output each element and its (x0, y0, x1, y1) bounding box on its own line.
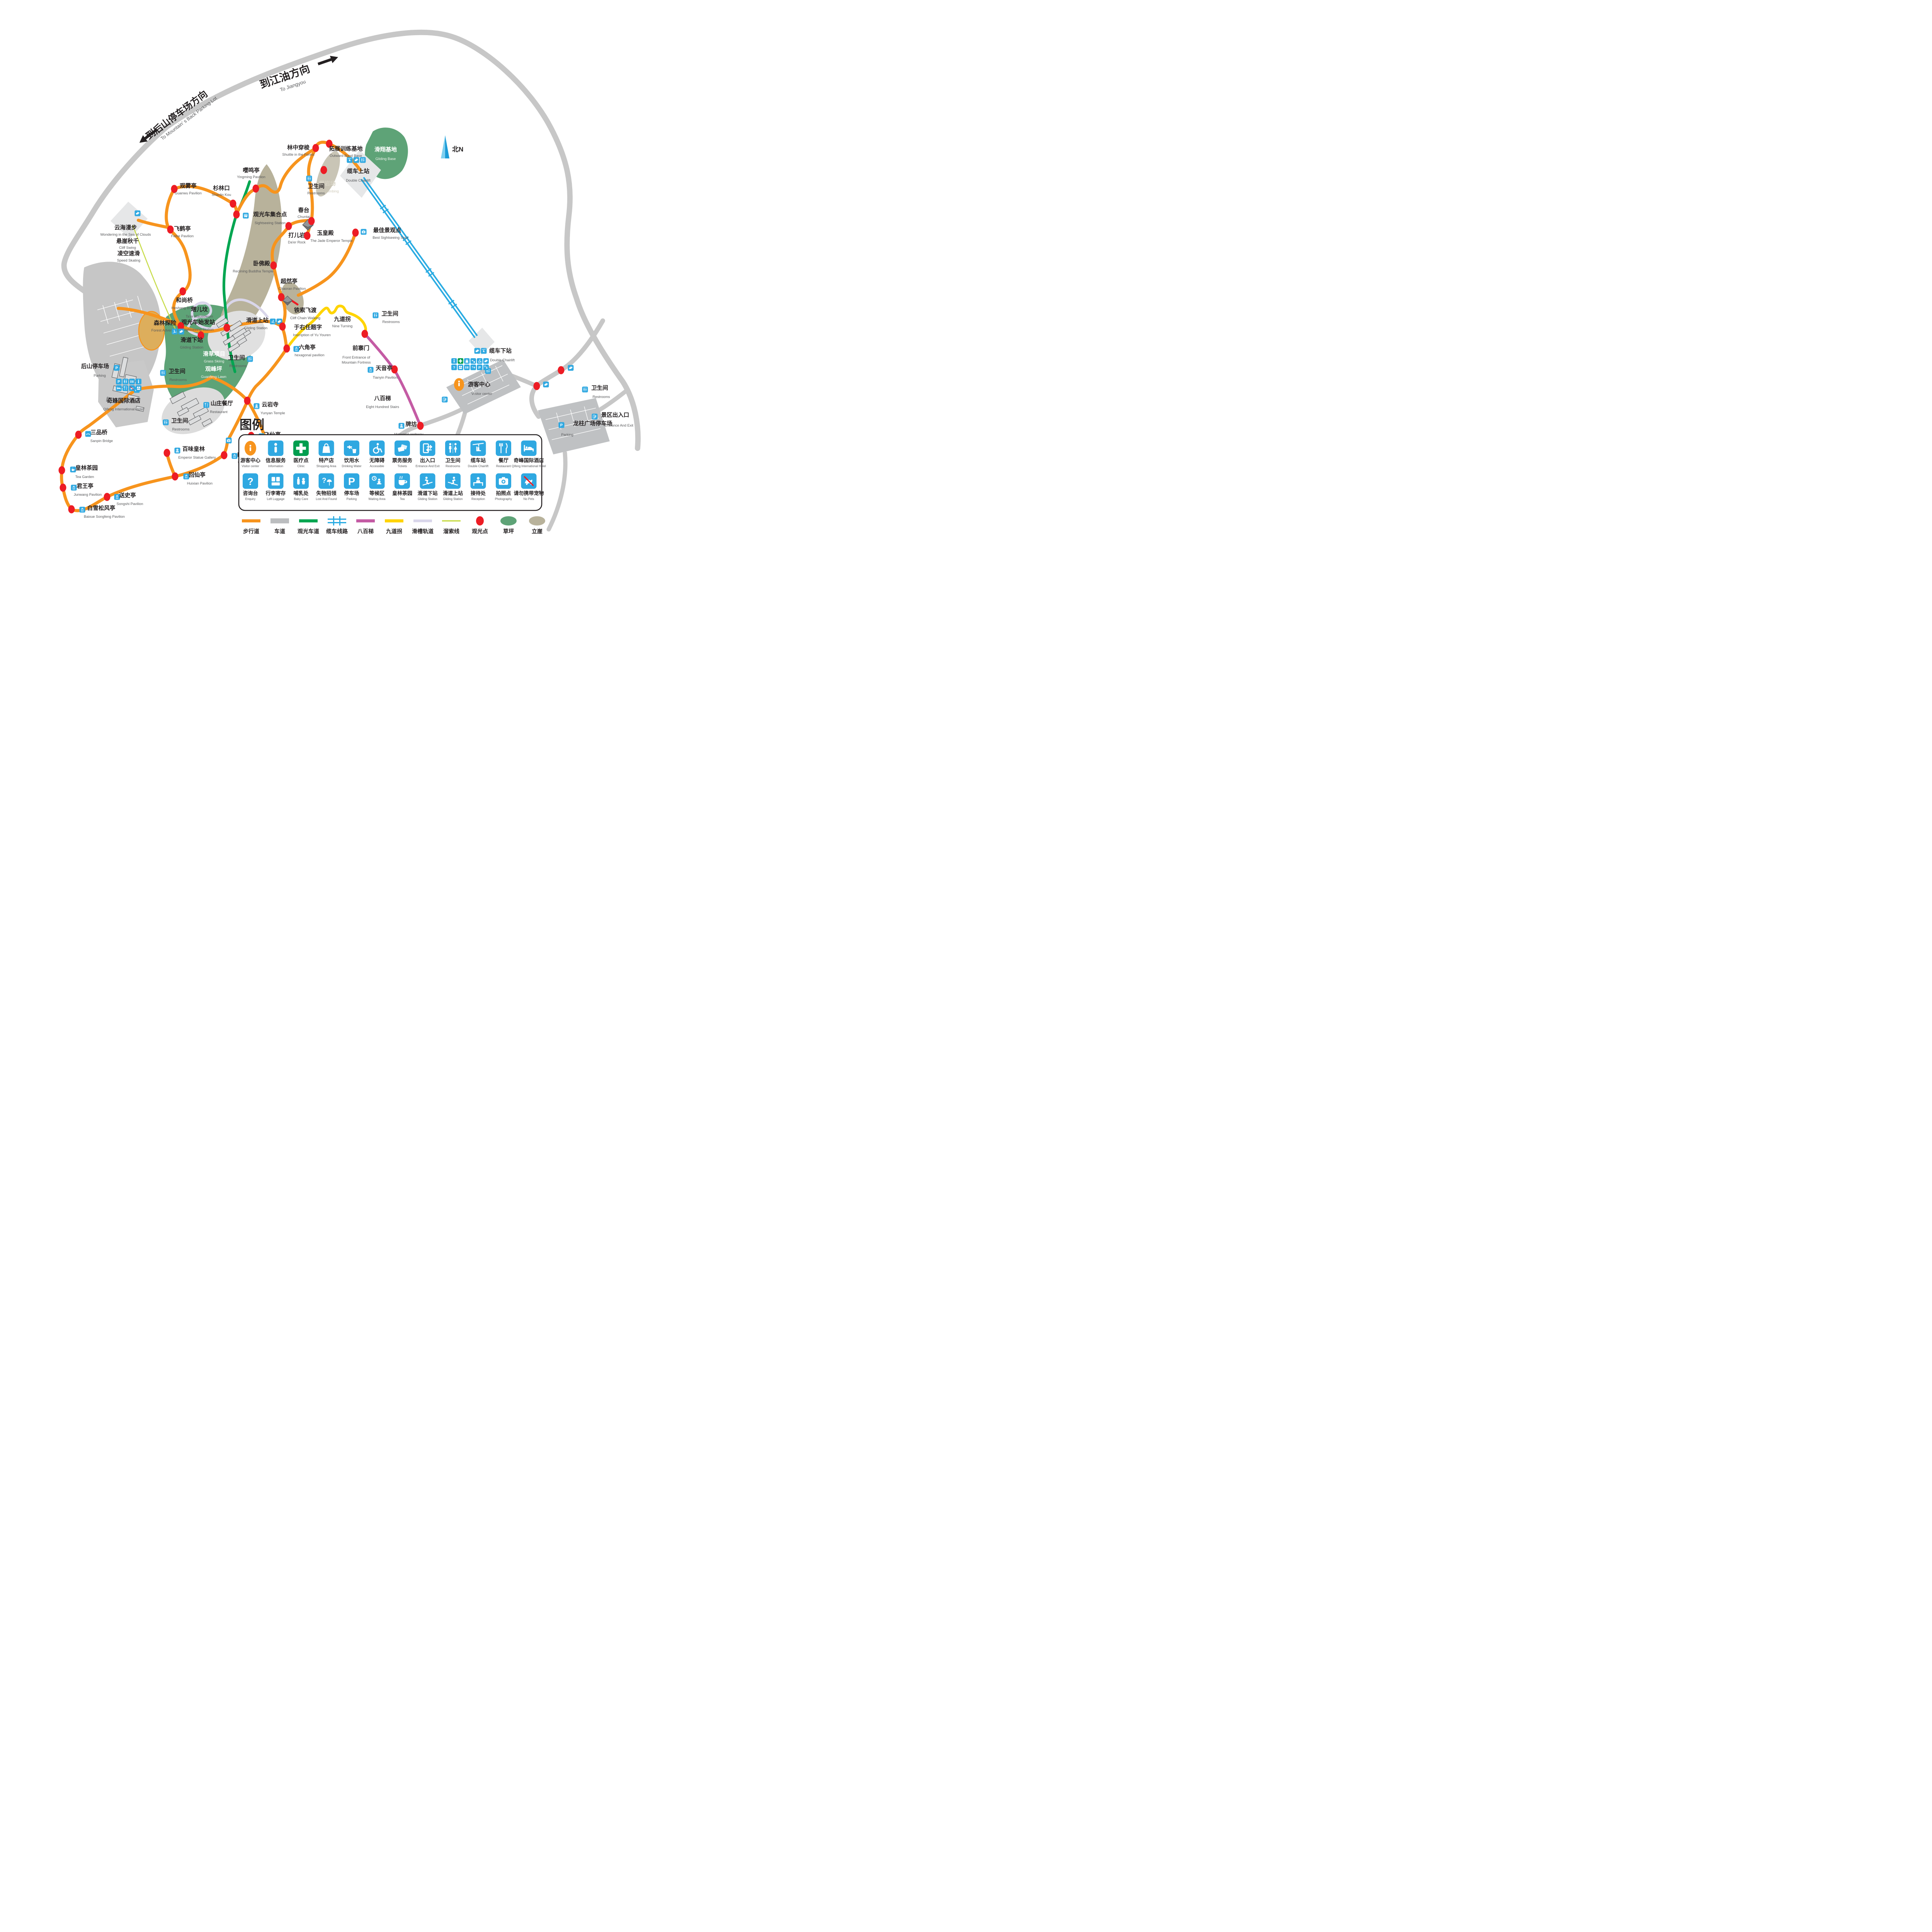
badge-bg (442, 397, 448, 403)
poi-label-en: Cliff Chain Walking (290, 316, 320, 320)
water-icon (471, 358, 476, 364)
restrooms-icon (163, 420, 169, 425)
poi-label-en: Emperor Statue Gallery (178, 456, 216, 459)
legend-label-en: Gliding Station (443, 497, 463, 501)
badge-bg (471, 365, 476, 371)
pavilion-icon (368, 367, 374, 373)
temple-icon (399, 423, 405, 429)
hotel-zone (98, 360, 154, 427)
poi-label-en: Gliding Base (376, 157, 396, 161)
poi-jade-emperor-temple: 玉皇殿The Jade Emperor Temple (304, 230, 353, 243)
scenic-spot-dot (233, 211, 240, 219)
restrooms-glyph (164, 420, 167, 424)
poi-eight-hundred-stairs: 八百梯Eight Hundred Stairs (366, 395, 399, 409)
poi-label-zh: 超然亭 (280, 278, 298, 285)
poi-label-en: Restrooms (383, 320, 400, 324)
pavilion-icon (184, 474, 189, 480)
temple-icon (175, 448, 180, 454)
tickets-icon (135, 211, 141, 216)
poi-label-zh: 凌空速滑 (117, 250, 140, 257)
blob-sample (529, 516, 545, 526)
spot-sample (476, 516, 484, 526)
poi-label-en: Inscription of Yu Youren (293, 333, 331, 337)
poi-label-en: Restrooms (170, 378, 187, 382)
scenic-spot-dot (224, 324, 230, 332)
poi-label-en: Huixian Pavilion (187, 481, 213, 485)
poi-label-zh: 山庄餐厅 (211, 400, 233, 407)
poi-label-en: Da'er Rock (288, 240, 306, 244)
poi-label-en: Restrooms (593, 395, 610, 399)
poi-label-en: The Jade Emperor Temple (310, 239, 352, 243)
legend-line-label: 草坪 (503, 528, 514, 534)
scenic-spot-dot (270, 262, 277, 270)
pavilion-icon (232, 453, 238, 459)
scenic-spot-dot (230, 200, 236, 208)
legend-label-en: Parking (347, 497, 357, 501)
badge-bg (592, 414, 598, 420)
bus-icon (243, 213, 249, 219)
parking-icon (116, 379, 122, 384)
poi-label-en: Restrooms (172, 427, 190, 431)
poi-label-zh: 杉林口 (213, 185, 230, 192)
poi-yu-youren-inscription: 于右任题字Inscription of Yu Youren (279, 323, 331, 337)
legend-label-en: Entrance And Exit (416, 464, 440, 468)
poi-label-zh: 缆车下站 (489, 347, 512, 354)
restrooms-glyph (374, 313, 377, 317)
tickets-icon (483, 358, 489, 364)
poi-label-en: Restrooms (308, 191, 325, 195)
legend-line-5: 九道拐 (385, 519, 403, 534)
poi-feihe-pavilion: 飞鹤亭Feihe Pavilion (167, 225, 194, 238)
poi-restrooms-mid: 卫生间Restrooms (228, 354, 253, 368)
poi-label-zh: 和尚桥 (176, 297, 193, 304)
poi-label-zh: 送史亭 (119, 492, 136, 499)
eight-hundred-stairs-trail (365, 334, 420, 426)
legend-line-7: 溜索线 (442, 520, 461, 534)
poi-label-en: Restrooms (230, 364, 247, 368)
legend-line-8: 观光点 (472, 516, 488, 534)
shopping-icon (464, 358, 470, 364)
scenic-spot-dot (59, 466, 65, 474)
legend-label-zh: 奇峰国际酒店 (514, 457, 544, 463)
poi-speed-skating: 凌空速滑Speed Skating (117, 250, 140, 262)
legend-line-3: 缆车线路 (326, 516, 348, 534)
parking-glyph (560, 423, 563, 428)
legend-line-label: 九道拐 (386, 528, 402, 534)
poi-label-en: Double Chairlift (490, 358, 515, 362)
legend-label-zh: 卫生间 (445, 457, 460, 463)
legend-label-zh: 票务服务 (392, 457, 413, 463)
poi-label-en: Tea Garden (75, 475, 94, 479)
legend-label-zh: 停车场 (344, 490, 359, 496)
question-glyph (247, 476, 253, 487)
legend-line-label: 溜索线 (443, 528, 459, 534)
ski-down-icon (172, 329, 178, 335)
scenic-spot-dot (180, 287, 186, 296)
legend-line-label: 观光点 (472, 528, 488, 534)
legend-line-10: 立崖 (529, 516, 545, 534)
badge-bg (136, 385, 141, 391)
compass-needle-light (441, 135, 445, 158)
poi-label-en: Tianyin Pavilion (373, 376, 398, 379)
legend-label-en: Waiting Area (369, 497, 386, 501)
poi-label-en: Junwang Pavilion (74, 493, 102, 497)
scenic-spot-dot (304, 232, 311, 240)
camera-icon (361, 229, 367, 235)
legend-icon-bg (420, 440, 435, 456)
legend-line-label: 八百梯 (357, 528, 374, 534)
poi-tea-garden: 皇林茶园Tea Garden (59, 464, 98, 479)
legend-label-zh: 游客中心 (240, 457, 260, 463)
poi-gliding-station-top: 滑道上站Gliding Station (244, 317, 282, 330)
info-glyph (454, 359, 455, 362)
poi-sightseeing-meeting: 观光车集合点Sightseeing Station (233, 211, 287, 225)
line-sample (385, 519, 403, 522)
poi-label-zh: 后山停车场 (81, 363, 109, 370)
poi-sea-of-clouds: 云海漫步Wondering in the Sea of Clouds (100, 224, 151, 236)
poi-label-zh: 滑道下站 (180, 337, 203, 344)
poi-label-zh: 卫生间 (168, 368, 185, 375)
poi-label-zh: 前寨门 (352, 345, 369, 352)
temple-icon (254, 403, 260, 409)
legend-label-zh: 咨询台 (243, 490, 258, 496)
legend-line-6: 滑槽轨道 (412, 520, 434, 535)
poi-label-en: Sightseeing Station (183, 328, 214, 332)
legend-icon-bg (369, 473, 385, 489)
info-glyph (274, 443, 277, 452)
poi-label-zh: 六角亭 (299, 344, 316, 351)
baby-icon (464, 365, 470, 371)
poi-daer-rock: 打儿岩Da'er Rock (288, 232, 306, 244)
legend-label-en: Photography (495, 497, 512, 501)
poi-label-zh: 林中穿梭 (287, 144, 310, 151)
poi-label-zh: 卫生间 (381, 310, 398, 317)
restrooms-icon (582, 387, 588, 393)
parking-glyph (478, 366, 481, 370)
scenic-spot-dot (313, 144, 319, 152)
poi-label-zh: 回仙亭 (189, 471, 206, 478)
poi-best-sightseeing-spot: 最佳景观点Best Sightseeing Spot (352, 227, 408, 240)
legend-label-zh: 失物招领 (316, 490, 336, 496)
legend-icon-bg (268, 473, 284, 489)
poi-restrooms-nine-turning: 卫生间Restrooms (373, 310, 400, 324)
tickets-icon (474, 348, 480, 354)
direction-back-parking: 到后山停车场方向 To Mountain' s Back Parking Lot (137, 85, 218, 147)
poi-label-zh: 铁索飞渡 (294, 307, 316, 314)
poi-label-zh: 飞鹤亭 (174, 225, 191, 232)
poi-label-zh: 打儿岩 (288, 232, 305, 239)
poi-label-en: Shuttle in the Forest (282, 153, 315, 156)
poi-label-zh: 缆车上站 (347, 168, 369, 175)
poi-label-en: Best Sightseeing Spot (372, 236, 408, 240)
legend-title: 图例 (240, 418, 264, 432)
poi-label-en: Chuntai (298, 215, 310, 219)
legend-label-zh: 出入口 (420, 457, 435, 463)
question-icon (451, 365, 457, 371)
legend-label-zh: 等候区 (369, 490, 384, 496)
poi-label-en: Shanlin Kou (212, 193, 231, 197)
poi-label-en: Front Entrance of (342, 355, 370, 359)
visitor-center-icon (454, 378, 464, 391)
luggage-icon (458, 365, 464, 371)
parking-icon (114, 365, 120, 371)
poi-label-en: Speed Skating (117, 259, 140, 262)
poi-label-en: Sightseeing Station (255, 221, 286, 225)
waiting-icon (483, 365, 489, 371)
compass-needle-dark (445, 135, 449, 158)
poi-label-zh: 卫生间 (591, 384, 608, 391)
scenic-spot-dot (244, 397, 251, 405)
parking-glyph (117, 380, 120, 384)
legend-line-9: 草坪 (500, 516, 517, 534)
restrooms-icon (360, 157, 366, 163)
scenic-spot-dot (417, 422, 424, 430)
legend-label-en: Restaurant (496, 464, 511, 468)
info-icon (136, 379, 141, 384)
restrooms-glyph (449, 443, 457, 453)
legend-label-en: Visitor center (241, 464, 259, 468)
line-sample (413, 520, 432, 522)
poi-label-zh: 君王亭 (77, 483, 94, 490)
poi-label-zh: 卧佛殿 (253, 260, 270, 267)
scenic-spot-dot (104, 493, 111, 501)
info-icon (451, 358, 457, 364)
paved-zones (83, 150, 610, 454)
scenic-spot-dot (278, 293, 285, 301)
scenic-spot-dot (253, 185, 259, 193)
pavilion-icon (71, 485, 77, 491)
camera-icon (226, 438, 232, 444)
info-glyph (138, 379, 139, 383)
legend-label-en: Gliding Station (418, 497, 437, 501)
tickets-icon (568, 365, 574, 371)
restaurant-icon (122, 385, 128, 391)
legend-label-en: Drinking Water (342, 464, 362, 468)
poi-label-en: Visitor center (471, 392, 492, 396)
cableway-lines (361, 177, 477, 338)
walk-hexagonal-south (248, 349, 287, 401)
poi-label-zh: 白雪松风亭 (87, 505, 116, 512)
legend: 图例 游客中心Visitor center信息服务Information医疗点C… (239, 418, 546, 534)
poi-label-en: Guanwu Pavilion (175, 191, 202, 195)
poi-label-en: Outward-Bund Base (330, 154, 362, 158)
legend-label-en: Tea (400, 497, 405, 501)
legend-label-zh: 餐厅 (498, 457, 509, 463)
poi-label-zh: 观峰坪 (205, 366, 222, 372)
poi-label-en: Songshi Pavilion (117, 502, 143, 506)
poi-label-en: Sanpin Bridge (90, 439, 113, 443)
poi-label-zh: 云岩寺 (262, 401, 279, 408)
poi-label-zh: 悬崖秋千 (116, 238, 139, 245)
poi-label-en: Reclining Buddha Temple (233, 269, 273, 273)
poi-label-zh: 滑草项目 (203, 350, 225, 357)
badge-bg (129, 379, 135, 384)
scenic-spot-dot (279, 323, 286, 331)
poi-label-zh: 拓展训练基地 (329, 145, 363, 152)
luggage-icon (136, 385, 141, 391)
legend-label-en: Clinic (297, 464, 304, 468)
poi-label-zh: 玉皇殿 (317, 230, 334, 236)
cable-line-2 (364, 177, 477, 336)
legend-label-zh: 请勿携带宠物 (514, 490, 544, 496)
legend-label-en: Tickets (398, 464, 407, 468)
poi-outward-bound-base: 拓展训练基地Outward-Bund Base (326, 140, 363, 158)
line-sample (356, 519, 375, 522)
poi-label-zh: 百味皇林 (182, 446, 205, 452)
badge-bg (483, 365, 489, 371)
poi-cliff-swing: 悬崖秋千Cliff Swing (116, 238, 139, 250)
question-glyph (453, 366, 455, 369)
legend-label-en: No Pets (524, 497, 534, 501)
legend-label-en: Enquiry (245, 497, 256, 501)
legend-label-zh: 特产店 (319, 457, 334, 463)
scenic-spot-dot (284, 345, 290, 353)
poi-label-en: Parking (94, 374, 106, 378)
restrooms-icon (306, 176, 312, 182)
poi-label-en: Double Chairlift (346, 179, 371, 182)
scenic-spot-dot (167, 226, 174, 234)
legend-label-zh: 皇林茶园 (392, 490, 412, 496)
legend-label-en: Accessible (370, 464, 384, 468)
poi-label-en: Yunyan Temple (260, 411, 285, 415)
legend-label-en: Left Luggage (267, 497, 285, 501)
poi-emperor-statue-gallery: 百味皇林Emperor Statue Gallery (164, 446, 216, 459)
bridge-icon (85, 431, 91, 437)
poi-shanlinkou: 杉林口Shanlin Kou (212, 185, 236, 208)
parking-glyph (116, 366, 118, 371)
poi-label-zh: 牌坊 (406, 421, 417, 428)
legend-icon-bg (496, 440, 511, 456)
info-glyph (250, 445, 252, 451)
badge-bg (204, 402, 209, 408)
poi-forest-shuttle: 林中穿梭Shuttle in the Forest (282, 144, 319, 157)
poi-label-en: Gliding Station (180, 345, 203, 349)
badge-bg (464, 365, 470, 371)
poi-label-zh: 滑道上站 (246, 317, 269, 324)
legend-label-zh: 滑道上站 (443, 490, 463, 496)
walk-yingming (174, 148, 316, 214)
pavilion-icon (80, 507, 85, 513)
compass-label: 北N (452, 146, 463, 153)
poi-label-zh: 皇林茶园 (75, 464, 98, 471)
legend-label-zh: 行李寄存 (265, 490, 286, 496)
legend-line-label: 车道 (274, 528, 285, 534)
exit-icon (592, 414, 598, 420)
walk-west-ridge (166, 189, 190, 326)
legend-label-zh: 医疗点 (293, 457, 308, 463)
scenic-spot-dot (221, 451, 228, 459)
legend-label-zh: 接待处 (471, 490, 486, 496)
poi-tianyin-pavilion: 天音亭Tianyin Pavilion (368, 365, 398, 379)
restaurant-icon (204, 402, 209, 408)
legend-line-4: 八百梯 (356, 519, 375, 534)
poi-label-en: Guanfeng Lawn (201, 375, 226, 379)
poi-label-en: Mountain Fortress (342, 361, 371, 364)
poi-exit-visitor-badge (442, 397, 448, 403)
restrooms-glyph (583, 388, 587, 391)
restrooms-glyph (308, 177, 311, 180)
scenic-spot-dot (321, 166, 327, 174)
scenic-spot-dot (60, 484, 66, 492)
poi-label-zh: 奇峰国际酒店 (107, 397, 141, 404)
nopets-icon (129, 385, 135, 391)
legend-line-label: 立崖 (532, 528, 543, 534)
scenic-spot-dot (172, 473, 179, 481)
poi-label-zh: 景区出入口 (601, 412, 629, 418)
poi-label-en: Parking (561, 433, 573, 437)
legend-line-label: 观光车道 (298, 528, 319, 534)
baby-icon (129, 379, 135, 384)
legend-label-en: Lost And Found (316, 497, 337, 501)
legend-label-en: Information (268, 464, 283, 468)
scenic-spot-dot (75, 431, 82, 439)
legend-label-zh: 哺乳处 (293, 490, 309, 496)
tickets-icon (354, 157, 359, 163)
poi-ticket-clouds (135, 211, 141, 216)
scenic-spot-dot (362, 330, 368, 338)
poi-label-en: Grass Skiing (204, 359, 224, 363)
restrooms-glyph (361, 158, 364, 162)
hotel-icon (116, 385, 122, 391)
legend-line-label: 滑槽轨道 (412, 528, 434, 534)
poi-photo-point (226, 438, 232, 444)
accessible-icon (477, 358, 483, 364)
tickets-icon (179, 329, 184, 335)
scenic-spot-dot (164, 449, 170, 457)
poi-huixian-pavilion: 回仙亭Huixian Pavilion (172, 471, 213, 485)
legend-label-en: Qifeng International Hotel (512, 464, 546, 468)
legend-label-en: Reception (471, 497, 485, 501)
parking-glyph (348, 476, 355, 487)
poi-label-zh: 九道拐 (333, 316, 351, 323)
legend-line-label: 缆车线路 (326, 528, 348, 534)
legend-label-zh: 滑道下站 (417, 490, 437, 496)
chairlift-icon (481, 348, 487, 354)
road-parking-south (549, 453, 565, 529)
restrooms-icon (160, 370, 166, 376)
scenic-area-map: ? ? P (0, 0, 678, 545)
line-sample (299, 519, 318, 522)
restrooms-icon (247, 356, 253, 362)
poi-label-zh: 八百梯 (374, 395, 391, 402)
visitor-center-grid (451, 358, 489, 370)
poi-label-en: Eight Hundred Stairs (366, 405, 399, 409)
legend-label-en: Double Chairlift (468, 464, 489, 468)
legend-line-label: 步行道 (243, 528, 259, 534)
legend-label-zh: 缆车站 (471, 457, 486, 463)
poi-label-zh: 三品桥 (90, 429, 107, 436)
restrooms-icon (122, 379, 128, 384)
scenic-spot-dot (352, 229, 359, 237)
poi-label-zh: 卫生间 (308, 183, 325, 190)
poi-front-entrance-fortress: 前寨门Front Entrance ofMountain Fortress (342, 330, 371, 365)
poi-label-zh: 游客中心 (468, 381, 490, 388)
poi-label-zh: 塔儿坟 (191, 306, 208, 313)
legend-label-zh: 信息服务 (265, 457, 286, 463)
cross-icon (458, 358, 464, 364)
legend-icon-bg (319, 473, 334, 489)
poi-label-en: Gliding Station (244, 326, 267, 330)
poi-label-en: Baixue Songfeng Pavilion (84, 515, 125, 519)
poi-label-zh: 卫生间 (228, 354, 245, 361)
legend-label-zh: 饮用水 (344, 457, 359, 463)
poi-label-zh: 于右任题字 (294, 324, 322, 331)
legend-line-1: 车道 (270, 519, 289, 535)
poi-label-en: Nine Turning (332, 324, 353, 328)
legend-label-en: Shopping Area (316, 464, 337, 468)
legend-label-en: Restrooms (446, 464, 460, 468)
parking-icon (559, 422, 565, 428)
